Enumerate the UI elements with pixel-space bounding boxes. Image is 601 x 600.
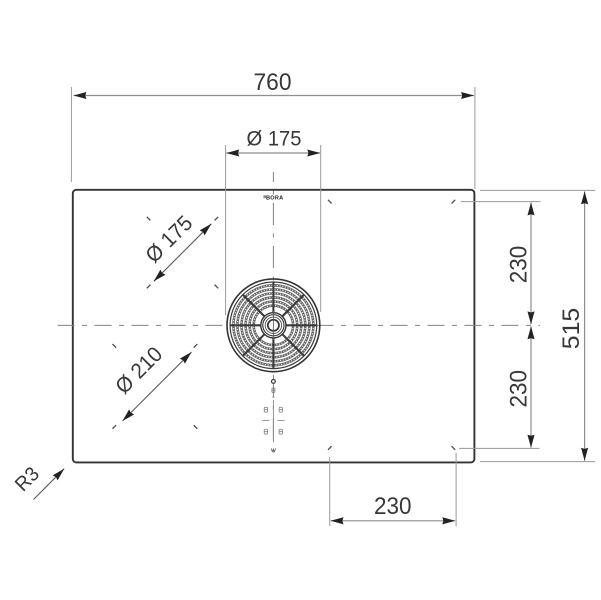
svg-text:230: 230 xyxy=(374,493,412,520)
svg-text:BORA: BORA xyxy=(266,196,283,202)
svg-text:515: 515 xyxy=(558,308,585,350)
svg-text:760: 760 xyxy=(254,69,292,96)
svg-text:Ø 175: Ø 175 xyxy=(247,128,302,151)
svg-text:230: 230 xyxy=(505,370,532,408)
svg-text:230: 230 xyxy=(505,246,532,284)
